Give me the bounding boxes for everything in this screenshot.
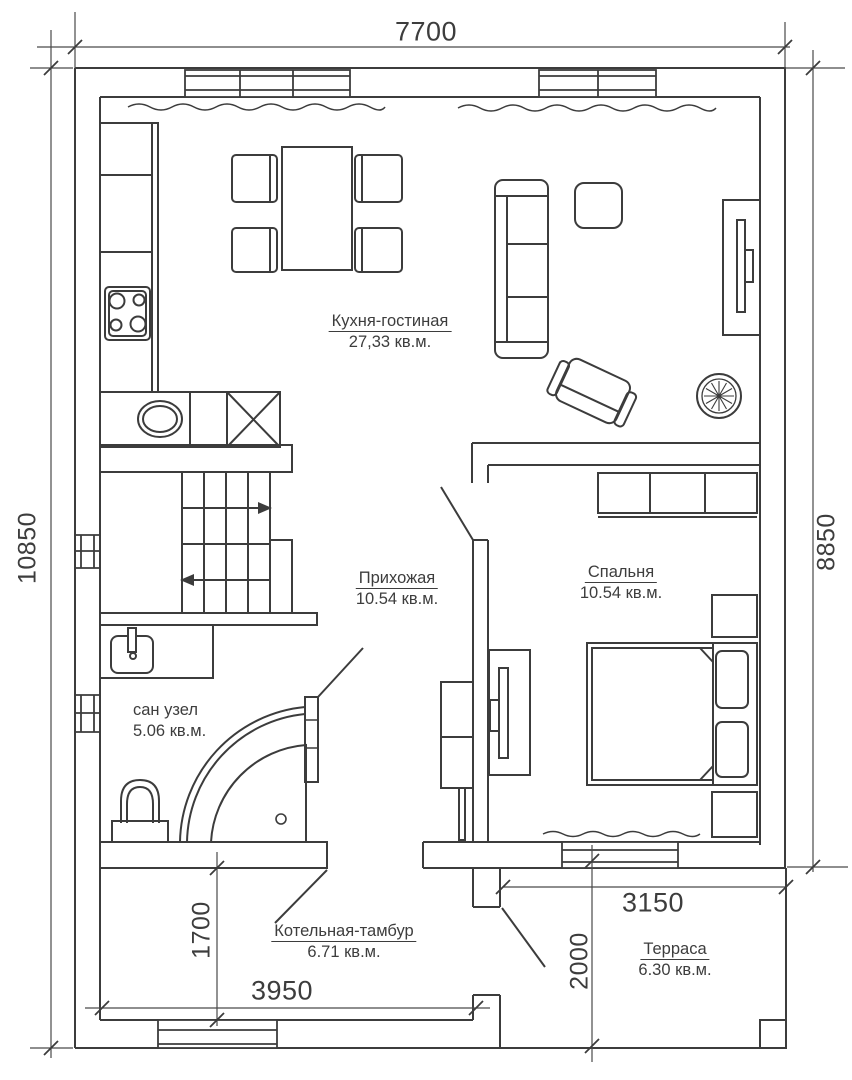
dining-chair (355, 155, 402, 202)
dim-boiler-height: 1700 (188, 901, 217, 959)
dim-terrace-height: 2000 (566, 932, 595, 990)
potted-plant-icon (697, 374, 741, 418)
curtain-waves (128, 104, 716, 837)
room-label-bathroom: сан узел 5.06 кв.м. (133, 700, 206, 742)
kitchen-counters (100, 123, 280, 447)
room-label-kitchen-living: Кухня-гостиная 27,33 кв.м. (329, 311, 452, 353)
room-label-boiler: Котельная-тамбур 6.71 кв.м. (271, 921, 416, 963)
window-left-bathroom (75, 695, 100, 732)
dim-terrace-width: 3150 (622, 888, 684, 919)
dim-left-height: 10850 (14, 512, 43, 584)
hallway-cabinet (441, 682, 473, 840)
nightstand-icon (712, 792, 757, 837)
dining-chair (355, 228, 402, 272)
room-name: сан узел (133, 701, 198, 719)
dining-chair (232, 228, 277, 272)
room-area: 5.06 кв.м. (133, 722, 206, 740)
room-label-hallway: Прихожая 10.54 кв.м. (356, 568, 438, 610)
windows (75, 70, 678, 1048)
room-name: Прихожая (356, 569, 438, 589)
double-bed-icon (587, 643, 757, 785)
dining-chair (232, 155, 277, 202)
room-name: Кухня-гостиная (329, 312, 452, 332)
dimension-ticks (44, 40, 820, 1055)
bathroom-door-swing (318, 648, 363, 697)
window-bedroom-south (562, 842, 678, 868)
dim-top-width: 7700 (395, 17, 457, 48)
room-name: Терраса (640, 940, 709, 960)
pillow (716, 651, 748, 708)
toilet-icon (112, 780, 168, 842)
boiler-door-swing (275, 870, 327, 923)
terrace-post (760, 1020, 786, 1048)
stairs (180, 472, 292, 613)
window-left-stairs (75, 535, 100, 568)
room-name: Спальня (585, 563, 657, 583)
room-area: 6.30 кв.м. (638, 961, 711, 979)
entrance-door-swing (502, 908, 545, 967)
wardrobe-icon (598, 473, 757, 517)
nightstand-icon (712, 595, 757, 637)
armchair-icon (545, 352, 641, 429)
washbasin-icon (100, 625, 213, 678)
dining-table (282, 147, 352, 270)
door-leaves (275, 487, 545, 967)
room-area: 10.54 кв.м. (580, 584, 662, 602)
bedroom-door-swing (441, 487, 473, 540)
room-area: 27,33 кв.м. (349, 333, 431, 351)
kitchen-sink-icon (138, 401, 182, 437)
room-label-terrace: Терраса 6.30 кв.м. (638, 939, 711, 981)
dim-right-height: 8850 (813, 513, 842, 571)
stove-icon (105, 287, 150, 340)
room-label-bedroom: Спальня 10.54 кв.м. (580, 562, 662, 604)
tv-unit-living (723, 200, 760, 335)
room-area: 6.71 кв.м. (307, 943, 380, 961)
window-top-kitchen (185, 70, 350, 97)
side-table-icon (575, 183, 622, 228)
room-name: Котельная-тамбур (271, 922, 416, 942)
floor-plan-page: { "rooms": { "kitchen_living": { "name":… (0, 0, 852, 1080)
tv-unit-bedroom (489, 650, 530, 775)
sofa-icon (495, 180, 548, 358)
floor-plan-drawing (0, 0, 852, 1080)
room-area: 10.54 кв.м. (356, 590, 438, 608)
window-top-living (539, 70, 656, 97)
dim-boiler-width: 3950 (251, 976, 313, 1007)
dining-table-set (232, 147, 402, 272)
pillow (716, 722, 748, 777)
